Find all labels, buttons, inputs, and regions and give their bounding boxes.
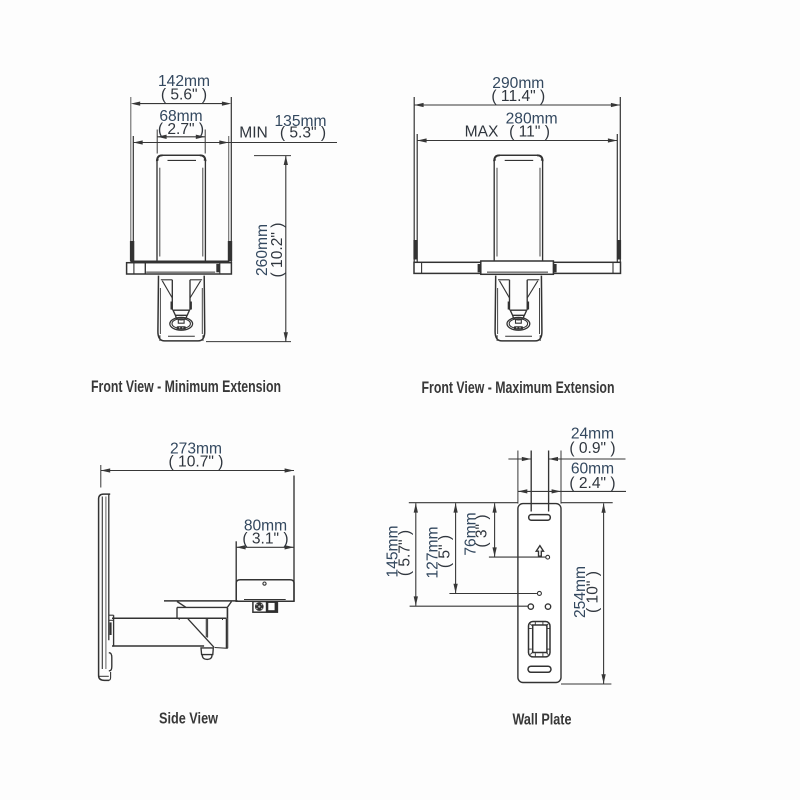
svg-text:( 0.9" ): ( 0.9" ) (569, 440, 615, 457)
svg-text:( 11.4" ): ( 11.4" ) (491, 88, 545, 105)
svg-text:( 5.3" ): ( 5.3" ) (280, 125, 326, 142)
svg-text:( 5" ): ( 5" ) (437, 535, 454, 568)
svg-text:( 11" ): ( 11" ) (509, 124, 550, 141)
svg-text:( 10" ): ( 10" ) (585, 571, 602, 613)
svg-text:Wall Plate: Wall Plate (513, 712, 572, 729)
svg-text:( 3.1" ): ( 3.1" ) (242, 531, 288, 548)
svg-text:( 5.6" ): ( 5.6" ) (161, 86, 207, 103)
svg-text:Side View: Side View (159, 711, 219, 728)
svg-text:( 2.4" ): ( 2.4" ) (569, 475, 615, 492)
svg-text:Front View - Minimum Extension: Front View - Minimum Extension (91, 378, 281, 396)
svg-text:( 5.7" ): ( 5.7" ) (397, 530, 414, 576)
svg-text:( 10.7" ): ( 10.7" ) (169, 454, 224, 471)
svg-text:MAX: MAX (465, 124, 499, 141)
svg-text:( 10.2" ): ( 10.2" ) (269, 223, 286, 278)
svg-text:MIN: MIN (239, 125, 268, 142)
svg-text:( 3" ): ( 3" ) (474, 514, 491, 547)
svg-text:Front View - Maximum Extension: Front View - Maximum Extension (422, 379, 615, 397)
svg-text:( 2.7" ): ( 2.7" ) (158, 121, 204, 138)
